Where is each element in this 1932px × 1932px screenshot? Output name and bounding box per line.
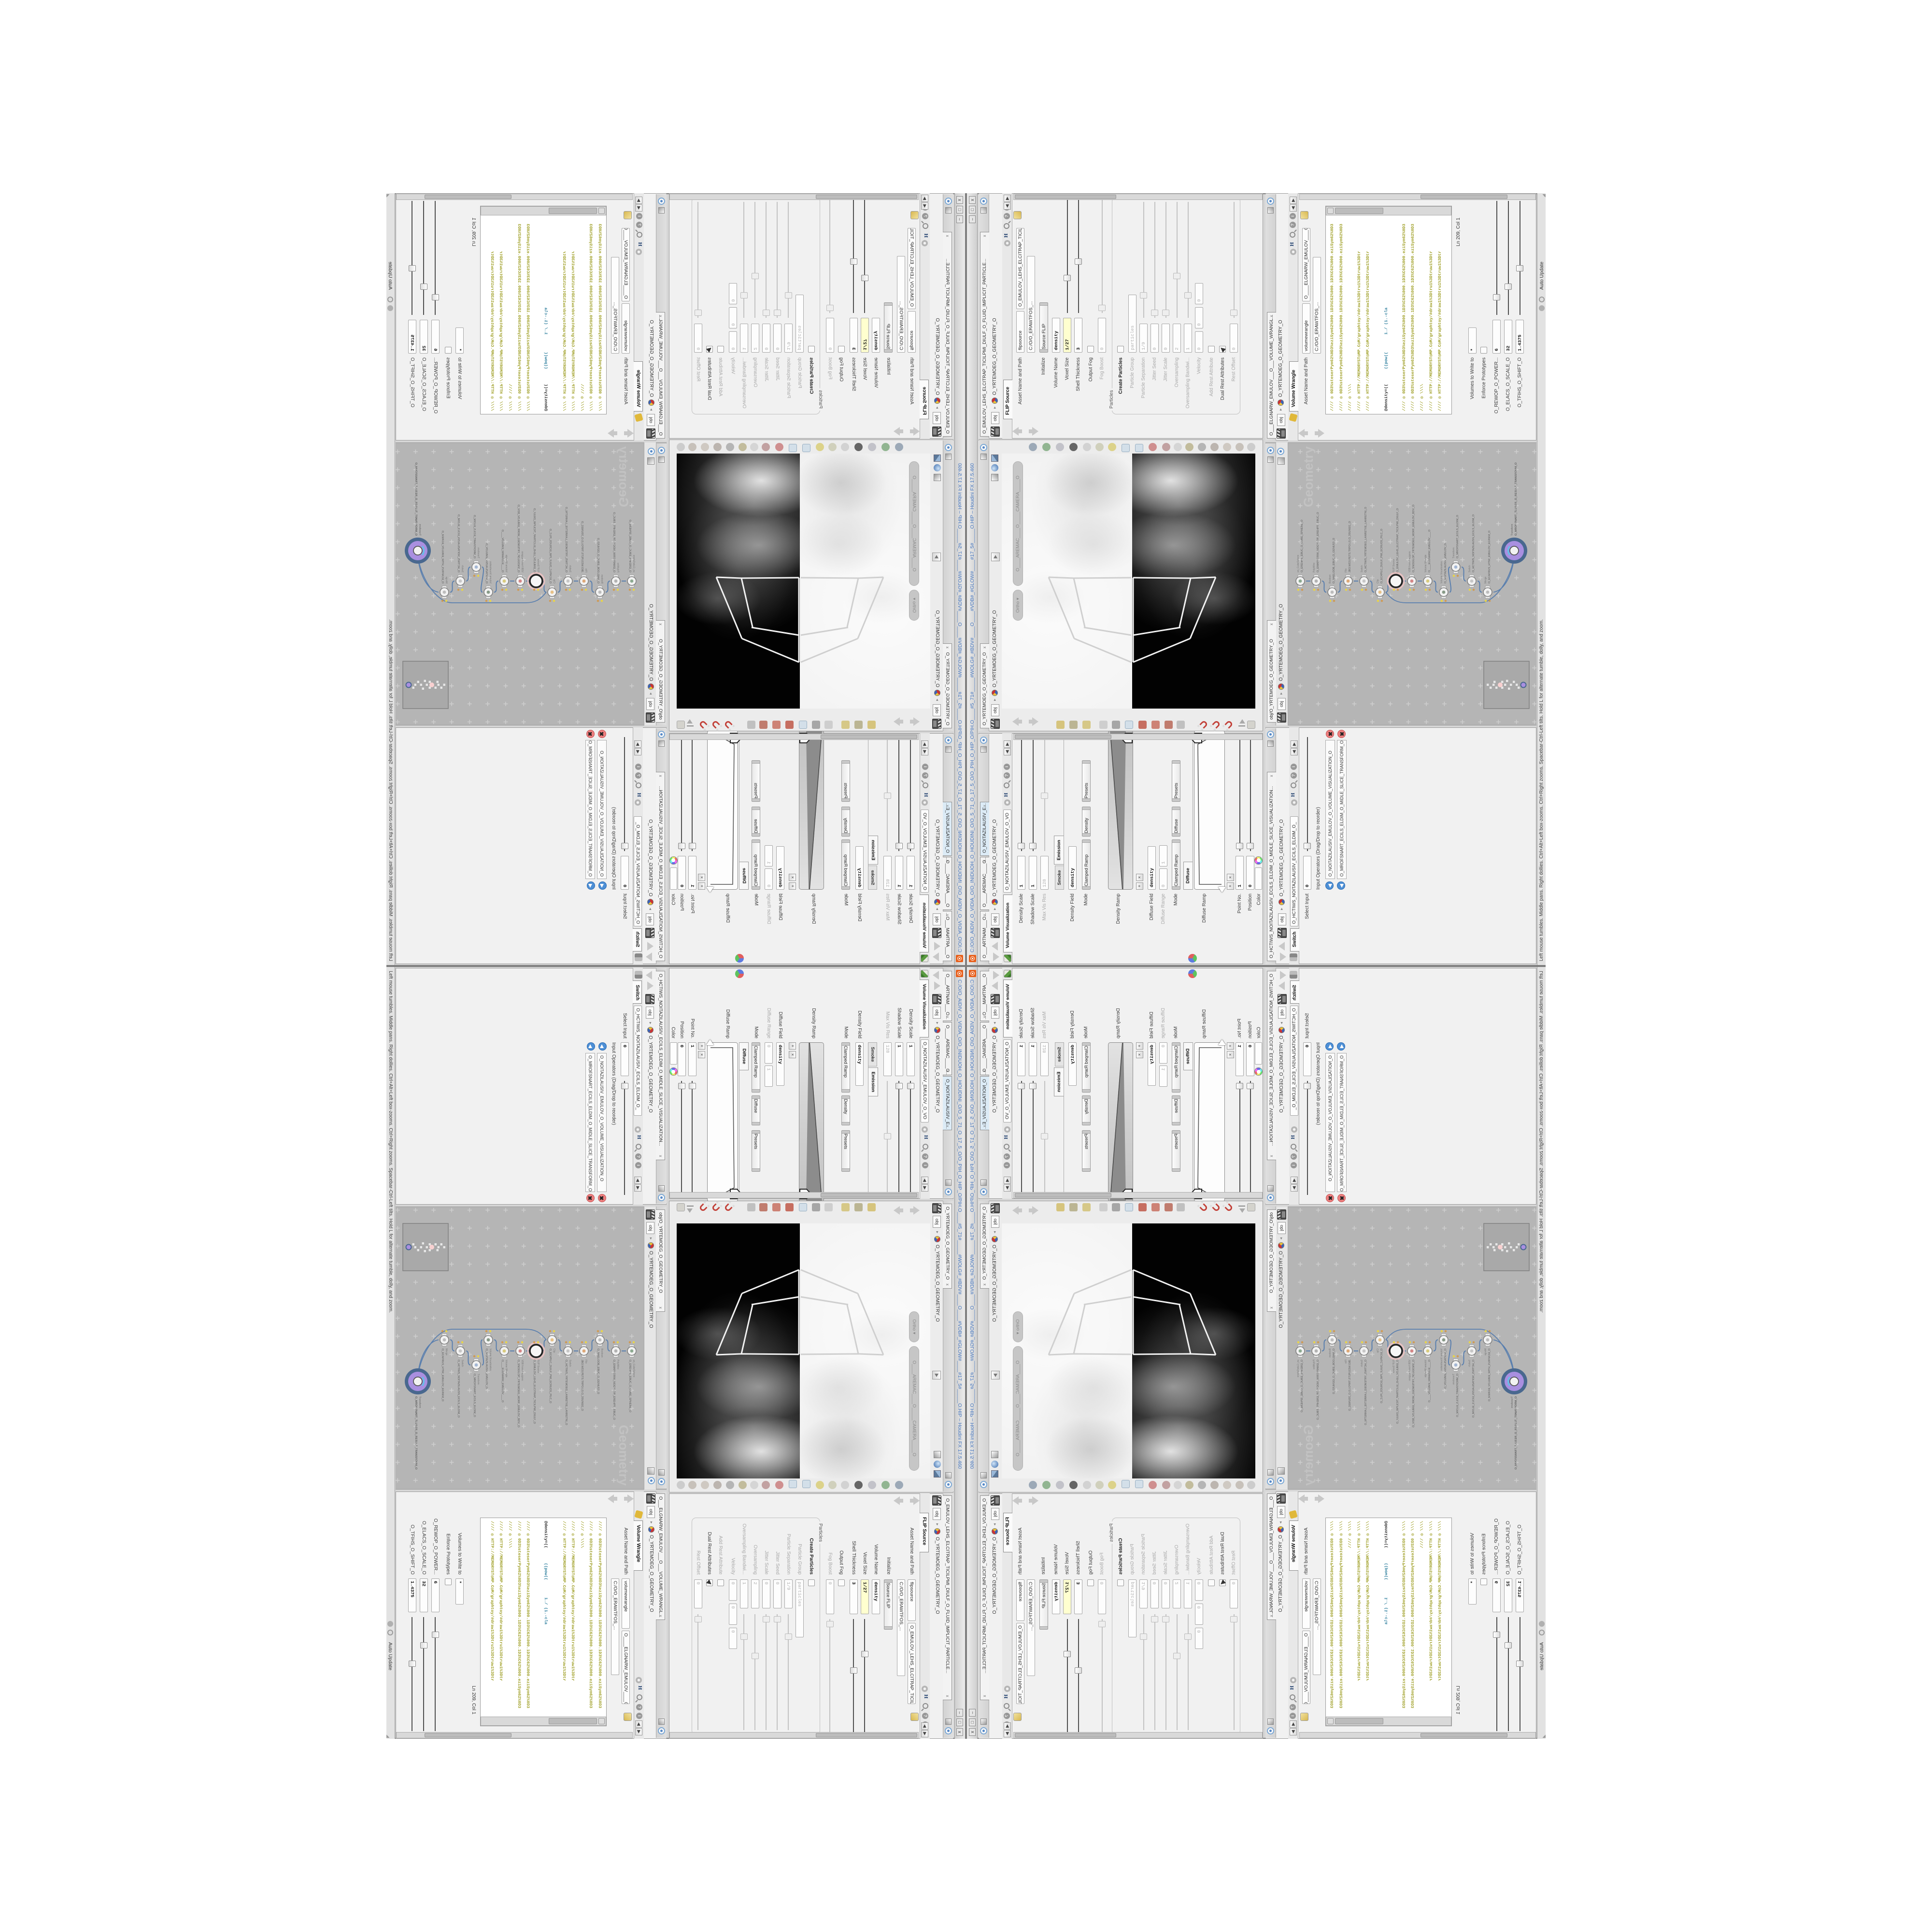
svg-text:Transform: Transform <box>418 524 421 536</box>
svg-text:an_CubeSphere: an_CubeSphere <box>632 554 635 572</box>
svg-text:O_EREHPS_EBUC_O_CUBE_SPHERE_O: O_EREHPS_EBUC_O_CUBE_SPHERE_O <box>1301 520 1304 572</box>
svg-text:O____ELGNARW_EMULOV____O: O____ELGNARW_EMULOV____O <box>501 1360 504 1403</box>
svg-text:Switch: Switch <box>1468 565 1471 572</box>
svg-text:O_EC4PILC_DUILF_PMI_ECRUOS_PIL: O_EC4PILC_DUILF_PMI_ECRUOS_PILC_O <box>549 1349 552 1404</box>
svg-text:O_MROFSNART_ECILS_ELDIM_O: O_MROFSNART_ECILS_ELDIM_O <box>473 515 476 558</box>
svg-text:O_MROFSNART_ECILS_ELDIM_O: O_MROFSNART_ECILS_ELDIM_O <box>1456 1374 1459 1417</box>
svg-text:Volume Visualization: Volume Visualization <box>1440 561 1443 583</box>
svg-text:VDB from Polygons: VDB from Polygons <box>521 551 524 572</box>
svg-text:O_SNOGILOP_YRTEMOEG_MORF_EMULO: O_SNOGILOP_YRTEMOEG_MORF_EMULOV_BDV_O <box>1412 504 1415 572</box>
svg-text:O_HCTIWS_YRTEMOEG_LANRETXE_LAN: O_HCTIWS_YRTEMOEG_LANRETXE_LANRETNI_O <box>1364 507 1367 572</box>
svg-text:O_MROFSNART_TLUSER_O_RESULT_TR: O_MROFSNART_TLUSER_O_RESULT_TRANSFORM_O <box>1515 462 1518 536</box>
svg-text:O_MROFSNART_TLUSER_O_RESULT_TR: O_MROFSNART_TLUSER_O_RESULT_TRANSFORM_O <box>414 462 417 536</box>
svg-text:O_NOITAZILAUSIV_EMULOV_O: O_NOITAZILAUSIV_EMULOV_O <box>1444 543 1447 583</box>
svg-text:O_NAELOOB_EBUC_O_GENUS3_O: O_NAELOOB_EBUC_O_GENUS3_O <box>597 1349 599 1394</box>
svg-text:Transform: Transform <box>418 1396 421 1408</box>
svg-text:Switch: Switch <box>1361 1360 1364 1367</box>
svg-text:PolyWire: PolyWire <box>1313 563 1316 572</box>
svg-text:O_MROFSNART_ECILS_ELDIM_O: O_MROFSNART_ECILS_ELDIM_O <box>473 1374 476 1417</box>
svg-text:Clip: Clip <box>1377 1349 1379 1353</box>
svg-text:Geometry: Geometry <box>616 1425 631 1486</box>
svg-text:JBO.WD3.PETS.TRPO.LS.O_3SUNEG_: JBO.WD3.PETS.TRPO.LS.O_3SUNEG_O <box>1349 521 1351 572</box>
svg-text:Transform: Transform <box>1452 547 1455 558</box>
svg-text:O_EMULOV_LEHS_ELCITRAP_TICILPM: O_EMULOV_LEHS_ELCITRAP_TICILPMI_DIULF_O <box>1396 1360 1399 1424</box>
svg-text:PolyWire: PolyWire <box>616 1360 619 1369</box>
svg-text:O_HCTIWS_NOITAZILAUSN_ECILS_EL: O_HCTIWS_NOITAZILAUSN_ECILS_ELDIM_O <box>457 1360 460 1418</box>
svg-text:O_ECAFRUS_HTIW_EMULOV_EGREM_O: O_ECAFRUS_HTIW_EMULOV_EGREM_O <box>441 1349 444 1402</box>
svg-text:JBO.WD3.PETS.TRPO.LS.O_3SUNEG_: JBO.WD3.PETS.TRPO.LS.O_3SUNEG_O <box>581 521 583 572</box>
svg-text:Clip: Clip <box>553 579 555 583</box>
svg-text:VDB from Polygons: VDB from Polygons <box>1408 1360 1411 1381</box>
svg-text:O_NAELOOB_EBUC_O_GENUS3_O: O_NAELOOB_EBUC_O_GENUS3_O <box>1333 1349 1335 1394</box>
svg-text:FLIP Source: FLIP Source <box>537 1360 540 1373</box>
svg-text:Geometry: Geometry <box>1301 446 1316 507</box>
svg-text:FLIP Source: FLIP Source <box>1392 1360 1395 1373</box>
svg-text:PolyWire: PolyWire <box>616 563 619 572</box>
svg-text:O_EMARFERIW_NOGYLOP_EREHPS_EBU: O_EMARFERIW_NOGYLOP_EREHPS_EBUC_O <box>612 1360 615 1420</box>
svg-text:Volume Visualization: Volume Visualization <box>1440 1349 1443 1371</box>
svg-text:Boolean: Boolean <box>1329 1349 1332 1358</box>
svg-text:O_NOITAZILAUSIV_EMULOV_O: O_NOITAZILAUSIV_EMULOV_O <box>485 1349 488 1389</box>
svg-text:an_CubeSphere: an_CubeSphere <box>1297 1360 1300 1378</box>
svg-text:O_HCTIWS_YRTEMOEG_LANRETXE_LAN: O_HCTIWS_YRTEMOEG_LANRETXE_LANRETNI_O <box>565 507 568 572</box>
svg-text:Boolean: Boolean <box>600 1349 603 1358</box>
svg-text:Volume Wrangle: Volume Wrangle <box>505 554 508 572</box>
svg-text:Switch: Switch <box>461 1360 464 1367</box>
svg-text:O_EMARFERIW_NOGYLOP_EREHPS_EBU: O_EMARFERIW_NOGYLOP_EREHPS_EBUC_O <box>1317 1360 1320 1420</box>
svg-text:Transform: Transform <box>477 547 480 558</box>
svg-text:Boolean: Boolean <box>1329 574 1332 583</box>
svg-text:O_EREHPS_EBUC_O_CUBE_SPHERE_O: O_EREHPS_EBUC_O_CUBE_SPHERE_O <box>628 1360 631 1412</box>
svg-text:O_ECAFRUS_HTIW_EMULOV_EGREM_O: O_ECAFRUS_HTIW_EMULOV_EGREM_O <box>1488 1349 1491 1402</box>
svg-text:VDB from Polygons: VDB from Polygons <box>521 1360 524 1381</box>
svg-text:O_HCTIWS_YRTEMOEG_LANRETXE_LAN: O_HCTIWS_YRTEMOEG_LANRETXE_LANRETNI_O <box>565 1360 568 1425</box>
svg-text:an_CubeSphere: an_CubeSphere <box>632 1360 635 1378</box>
svg-text:O_EMULOV_LEHS_ELCITRAP_TICILPM: O_EMULOV_LEHS_ELCITRAP_TICILPMI_DIULF_O <box>1396 508 1399 572</box>
svg-text:VDB from Polygons: VDB from Polygons <box>1408 551 1411 572</box>
svg-text:O____ELGNARW_EMULOV____O: O____ELGNARW_EMULOV____O <box>1428 529 1431 572</box>
svg-text:O_EMARFERIW_NOGYLOP_EREHPS_EBU: O_EMARFERIW_NOGYLOP_EREHPS_EBUC_O <box>612 512 615 572</box>
svg-text:O_MROFSNART_ECILS_ELDIM_O: O_MROFSNART_ECILS_ELDIM_O <box>1456 515 1459 558</box>
svg-text:FLIP Source: FLIP Source <box>537 559 540 572</box>
svg-text:O____ELGNARW_EMULOV____O: O____ELGNARW_EMULOV____O <box>501 529 504 572</box>
svg-text:Geometry: Geometry <box>1301 1425 1316 1486</box>
svg-text:O_EREHPS_EBUC_O_CUBE_SPHERE_O: O_EREHPS_EBUC_O_CUBE_SPHERE_O <box>1301 1360 1304 1412</box>
svg-text:an_CubeSphere: an_CubeSphere <box>1297 554 1300 572</box>
svg-text:Merge: Merge <box>445 577 448 583</box>
svg-text:Geometry: Geometry <box>616 446 631 507</box>
svg-text:O_SNOGILOP_YRTEMOEG_MORF_EMULO: O_SNOGILOP_YRTEMOEG_MORF_EMULOV_BDV_O <box>517 1360 520 1428</box>
svg-text:JBO.WD3.PETS.TRPO.LS.O_3SUNEG_: JBO.WD3.PETS.TRPO.LS.O_3SUNEG_O <box>1349 1360 1351 1411</box>
svg-text:O_NOITAZILAUSIV_EMULOV_O: O_NOITAZILAUSIV_EMULOV_O <box>1444 1349 1447 1389</box>
svg-text:O_ECAFRUS_HTIW_EMULOV_EGREM_O: O_ECAFRUS_HTIW_EMULOV_EGREM_O <box>1488 530 1491 583</box>
svg-text:Merge: Merge <box>445 1349 448 1355</box>
svg-text:Volume Wrangle: Volume Wrangle <box>1424 1360 1427 1378</box>
svg-text:O_MROFSNART_TLUSER_O_RESULT_TR: O_MROFSNART_TLUSER_O_RESULT_TRANSFORM_O <box>1515 1396 1518 1470</box>
svg-text:Transform: Transform <box>1452 1374 1455 1385</box>
svg-text:Switch: Switch <box>461 565 464 572</box>
svg-text:O_NAELOOB_EBUC_O_GENUS3_O: O_NAELOOB_EBUC_O_GENUS3_O <box>597 538 599 583</box>
svg-text:O_EMARFERIW_NOGYLOP_EREHPS_EBU: O_EMARFERIW_NOGYLOP_EREHPS_EBUC_O <box>1317 512 1320 572</box>
svg-text:O_NAELOOB_EBUC_O_GENUS3_O: O_NAELOOB_EBUC_O_GENUS3_O <box>1333 538 1335 583</box>
svg-text:File: File <box>584 1360 587 1364</box>
svg-text:Merge: Merge <box>1484 1349 1487 1355</box>
svg-text:O_NOITAZILAUSIV_EMULOV_O: O_NOITAZILAUSIV_EMULOV_O <box>485 543 488 583</box>
svg-text:Transform: Transform <box>1511 524 1514 536</box>
svg-text:PolyWire: PolyWire <box>1313 1360 1316 1369</box>
svg-text:Boolean: Boolean <box>600 574 603 583</box>
svg-text:O_HCTIWS_NOITAZILAUSN_ECILS_EL: O_HCTIWS_NOITAZILAUSN_ECILS_ELDIM_O <box>1472 514 1475 572</box>
svg-text:O_EC4PILC_DUILF_PMI_ECRUOS_PIL: O_EC4PILC_DUILF_PMI_ECRUOS_PILC_O <box>1380 528 1383 583</box>
svg-text:Switch: Switch <box>568 565 571 572</box>
svg-text:Transform: Transform <box>477 1374 480 1385</box>
svg-text:Volume Visualization: Volume Visualization <box>489 561 492 583</box>
svg-text:O_EREHPS_EBUC_O_CUBE_SPHERE_O: O_EREHPS_EBUC_O_CUBE_SPHERE_O <box>628 520 631 572</box>
svg-text:O_SNOGILOP_YRTEMOEG_MORF_EMULO: O_SNOGILOP_YRTEMOEG_MORF_EMULOV_BDV_O <box>1412 1360 1415 1428</box>
svg-text:O_EMULOV_LEHS_ELCITRAP_TICILPM: O_EMULOV_LEHS_ELCITRAP_TICILPMI_DIULF_O <box>533 1360 536 1424</box>
svg-text:O_ECAFRUS_HTIW_EMULOV_EGREM_O: O_ECAFRUS_HTIW_EMULOV_EGREM_O <box>441 530 444 583</box>
svg-text:O_EC4PILC_DUILF_PMI_ECRUOS_PIL: O_EC4PILC_DUILF_PMI_ECRUOS_PILC_O <box>1380 1349 1383 1404</box>
svg-text:O_HCTIWS_NOITAZILAUSN_ECILS_EL: O_HCTIWS_NOITAZILAUSN_ECILS_ELDIM_O <box>1472 1360 1475 1418</box>
svg-text:Clip: Clip <box>1377 579 1379 583</box>
svg-text:Volume Visualization: Volume Visualization <box>489 1349 492 1371</box>
svg-text:FLIP Source: FLIP Source <box>1392 559 1395 572</box>
svg-text:Transform: Transform <box>1511 1396 1514 1408</box>
svg-text:Switch: Switch <box>1361 565 1364 572</box>
svg-text:File: File <box>584 568 587 572</box>
svg-text:Switch: Switch <box>1468 1360 1471 1367</box>
svg-text:O_EC4PILC_DUILF_PMI_ECRUOS_PIL: O_EC4PILC_DUILF_PMI_ECRUOS_PILC_O <box>549 528 552 583</box>
svg-text:O_EMULOV_LEHS_ELCITRAP_TICILPM: O_EMULOV_LEHS_ELCITRAP_TICILPMI_DIULF_O <box>533 508 536 572</box>
svg-text:O_SNOGILOP_YRTEMOEG_MORF_EMULO: O_SNOGILOP_YRTEMOEG_MORF_EMULOV_BDV_O <box>517 504 520 572</box>
svg-text:Volume Wrangle: Volume Wrangle <box>505 1360 508 1378</box>
svg-text:JBO.WD3.PETS.TRPO.LS.O_3SUNEG_: JBO.WD3.PETS.TRPO.LS.O_3SUNEG_O <box>581 1360 583 1411</box>
svg-text:Switch: Switch <box>568 1360 571 1367</box>
svg-text:Clip: Clip <box>553 1349 555 1353</box>
svg-text:File: File <box>1345 568 1348 572</box>
svg-text:O_HCTIWS_YRTEMOEG_LANRETXE_LAN: O_HCTIWS_YRTEMOEG_LANRETXE_LANRETNI_O <box>1364 1360 1367 1425</box>
svg-text:O____ELGNARW_EMULOV____O: O____ELGNARW_EMULOV____O <box>1428 1360 1431 1403</box>
svg-text:Volume Wrangle: Volume Wrangle <box>1424 554 1427 572</box>
svg-text:File: File <box>1345 1360 1348 1364</box>
svg-text:Merge: Merge <box>1484 577 1487 583</box>
svg-text:O_HCTIWS_NOITAZILAUSN_ECILS_EL: O_HCTIWS_NOITAZILAUSN_ECILS_ELDIM_O <box>457 514 460 572</box>
svg-text:O_MROFSNART_TLUSER_O_RESULT_TR: O_MROFSNART_TLUSER_O_RESULT_TRANSFORM_O <box>414 1396 417 1470</box>
